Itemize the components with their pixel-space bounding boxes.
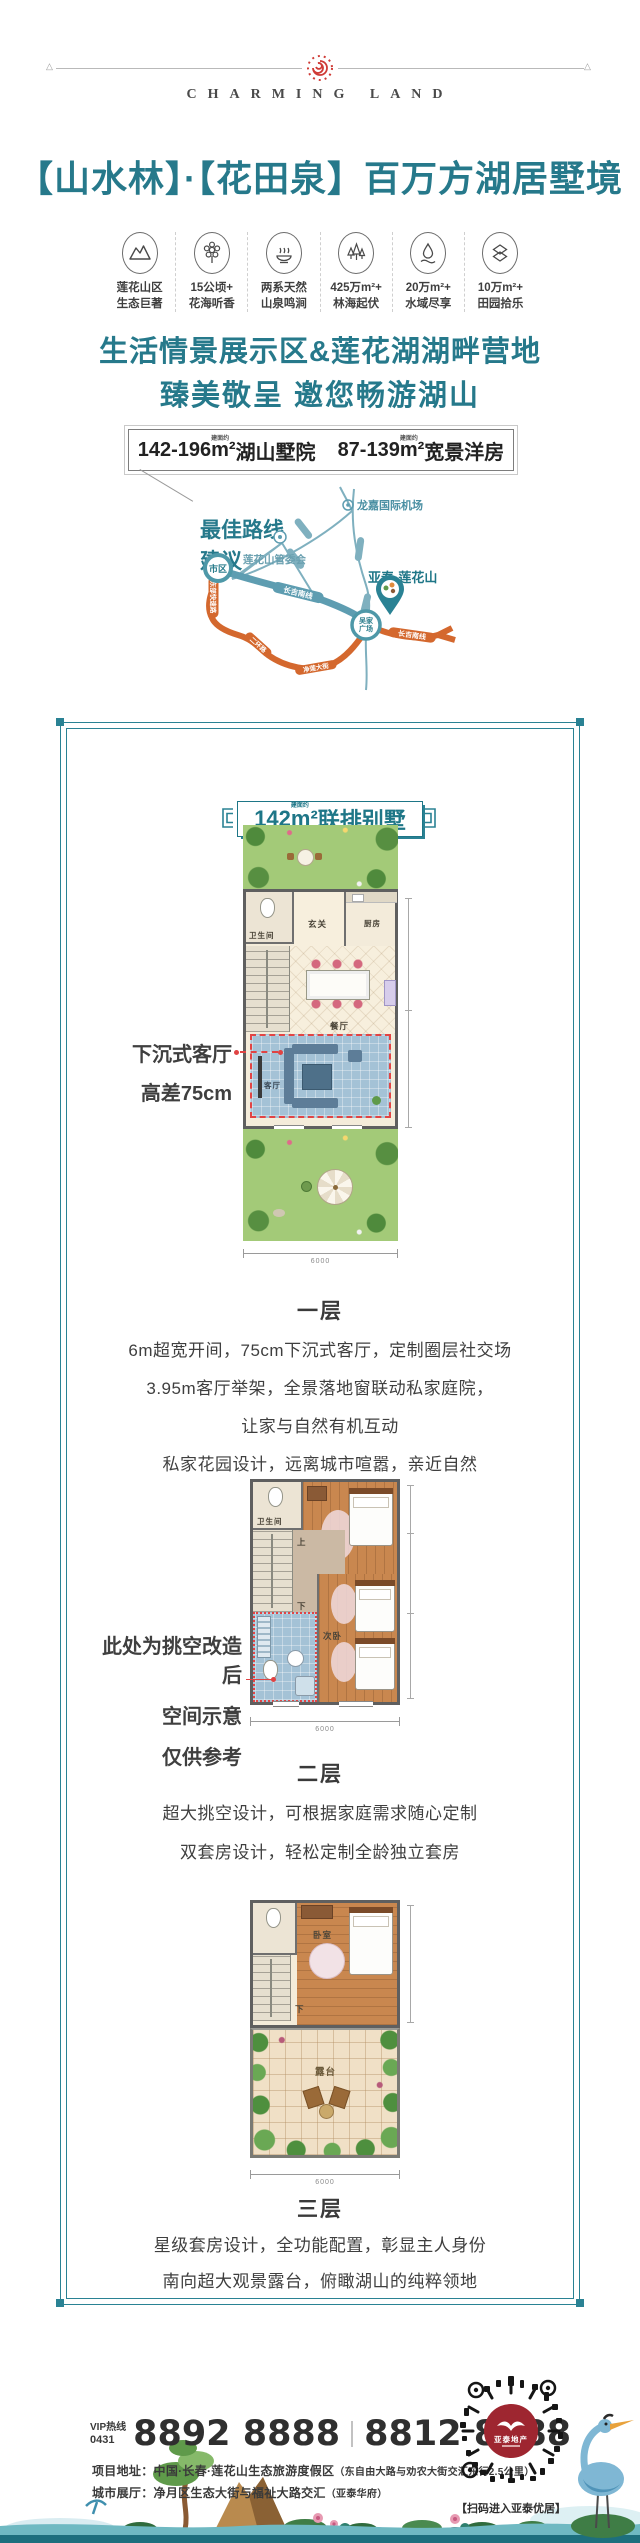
toilet-shape [268, 1487, 283, 1507]
city-hall-address: 城市展厅：净月区生态大街与福祉大路交汇（亚泰华府） [92, 2484, 388, 2501]
floorplan-level2: 卫生间 上 下 次卧 6000 [250, 1479, 400, 1739]
dining-table [306, 970, 370, 1000]
feature-line2: 生态巨著 [104, 296, 175, 312]
header-divider-right [338, 68, 584, 69]
map-square-line1: 吴家 [359, 616, 374, 625]
hot-spring-icon [266, 232, 302, 274]
area-left-name: 湖山墅院 [236, 436, 316, 465]
annotation-arrow-line [246, 1679, 272, 1680]
stair-rail [266, 950, 268, 1028]
feature-line1: 10万m²+ [465, 280, 536, 296]
room-label-bedroom: 卧室 [313, 1929, 332, 1941]
feature-shuiyu: 20万m²+ 水域尽享 [392, 232, 464, 312]
stair-rail [271, 1534, 273, 1608]
feature-line2: 林海起伏 [321, 296, 392, 312]
feature-linhai: 425万m²+ 林海起伏 [320, 232, 392, 312]
square-circle [352, 611, 380, 639]
house-level2: 卫生间 上 下 次卧 [250, 1479, 400, 1705]
sunken-living-room: 客厅 [250, 1034, 391, 1118]
wardrobe-strip [257, 1616, 271, 1658]
dimension-right-level1 [408, 898, 409, 1128]
annotation-dot [278, 1050, 283, 1055]
garden-front [243, 825, 398, 889]
feature-shanquan: 两系天然 山泉鸣涧 [247, 232, 319, 312]
toilet-shape [266, 1908, 281, 1928]
phone-number-1: 8892 8888 [133, 2414, 340, 2454]
floor3-desc-line: 南向超大观景露台，俯瞰湖山的纯粹领地 [0, 2267, 640, 2292]
feature-line2: 山泉鸣涧 [248, 296, 319, 312]
area-banner: 142-196建面约m²湖山墅院 87-139建面约m²宽景洋房 [128, 429, 514, 471]
staircase [246, 946, 290, 1032]
map-committee-label: 莲花山管委会 [243, 553, 306, 566]
mountain-icon [122, 232, 158, 274]
hotline-label: VIP热线 0431 [90, 2422, 126, 2446]
toilet-shape [260, 898, 275, 918]
stairs-down-label: 下 [295, 2003, 305, 2015]
feature-line1: 两系天然 [248, 280, 319, 296]
annotation-dot [234, 1050, 239, 1055]
flower-icon [194, 232, 230, 274]
room-label-bath: 卫生间 [257, 1516, 283, 1527]
annotation-dot [271, 1677, 276, 1682]
qr-code: 亚泰地产 [456, 2374, 566, 2492]
bathroom: 卫生间 [246, 892, 294, 944]
house-level1: 卫生间 玄关 厨房 上 下 餐厅 客厅 [243, 889, 398, 1129]
qr-logo-name: 亚泰地产 [494, 2434, 528, 2444]
staircase [253, 1955, 291, 2021]
map-airport-label: 龙嘉国际机场 [356, 498, 423, 512]
kitchen: 厨房 [344, 892, 395, 950]
armchair [348, 1050, 362, 1062]
bathroom [253, 1903, 297, 1955]
bed [349, 1907, 393, 1975]
feature-line1: 15公顷+ [176, 280, 247, 296]
fridge [384, 980, 396, 1006]
floor-caption-3: 三层 [0, 2193, 640, 2223]
garden-chair [287, 853, 294, 860]
hotline-area-code: 0431 [90, 2434, 126, 2446]
kitchen-sink [352, 894, 364, 902]
garden-chair [315, 853, 322, 860]
bed [355, 1580, 395, 1632]
rug [331, 1584, 357, 1624]
feature-line1: 莲花山区 [104, 280, 175, 296]
feature-line2: 田园拾乐 [465, 296, 536, 312]
plant-pot [372, 1096, 381, 1105]
floor1-desc-line: 6m超宽开间，75cm下沉式客厅，定制圈层社交场 [0, 1336, 640, 1361]
floor-caption-2: 二层 [0, 1758, 640, 1788]
phone-separator [351, 2421, 353, 2447]
annotation-arrow-line [240, 1051, 278, 1053]
feature-tianyuan: 10万m²+ 田园拾乐 [464, 232, 536, 312]
sofa-top [292, 1044, 338, 1054]
road-label-jinglian: 净莲大街 [302, 661, 330, 674]
bed [355, 1638, 395, 1690]
terrace-table [319, 2104, 334, 2119]
water-icon [410, 232, 446, 274]
page-title: 【山水林】·【花田泉】百万方湖居墅境 [0, 150, 640, 202]
feature-line2: 花海听香 [176, 296, 247, 312]
stairs-up-label: 上 [297, 1536, 307, 1548]
converted-bathroom [253, 1612, 317, 1702]
header-divider-left [56, 68, 302, 69]
annotation-void-space: 此处为挑空改造后 空间示意 仅供参考 [88, 1630, 242, 1770]
garden-path-stone [273, 1209, 285, 1217]
window [273, 1701, 299, 1707]
field-icon [482, 232, 518, 274]
annotation-sunken-living: 下沉式客厅 高差75cm [112, 1038, 232, 1106]
room-label-kitchen: 厨房 [364, 918, 381, 929]
feature-lianhuashan: 莲花山区 生态巨著 [104, 232, 175, 312]
intro-line2: 臻美敬呈 邀您畅游湖山 [0, 372, 640, 414]
frame-corner-tr [576, 718, 584, 726]
window [339, 1701, 373, 1707]
sofa-left [284, 1048, 294, 1104]
area-left-unit: 建面约m² [211, 439, 235, 462]
floor1-desc-line: 私家花园设计，远离城市喧嚣，亲近自然 [0, 1450, 640, 1475]
suite-bedroom: 卧室 [297, 1903, 397, 2025]
frame-corner-bl [56, 2299, 64, 2307]
road-to-airport [232, 511, 352, 579]
floor2-desc-line: 超大挑空设计，可根据家庭需求随心定制 [0, 1799, 640, 1824]
heron [571, 2415, 635, 2538]
desk [307, 1486, 327, 1501]
house-level3: 卧室 下 [250, 1900, 400, 2028]
intro-line1: 生活情景展示区&莲花湖湖畔营地 [0, 328, 640, 370]
map-square-line2: 广场 [359, 624, 373, 633]
area-right-range: 87-139 [338, 439, 400, 462]
bed [349, 1488, 393, 1546]
dimension-right-level2 [410, 1485, 411, 1699]
feature-line1: 20万m²+ [393, 280, 464, 296]
room-label-dining: 餐厅 [330, 1020, 349, 1032]
second-bedroom: 次卧 [317, 1574, 397, 1702]
room-label-foyer: 玄关 [308, 918, 327, 930]
dining-room: 餐厅 [290, 946, 395, 1034]
terrace-plants [253, 2030, 397, 2155]
floor1-desc-line: 让家与自然有机互动 [0, 1412, 640, 1437]
features-row: 莲花山区 生态巨著 15公顷+ 花海听香 两系天然 山泉鸣涧 425万m²+ 林… [104, 232, 536, 312]
floor-caption-1: 一层 [0, 1295, 640, 1325]
area-left-range: 142-196 [138, 439, 211, 462]
room-label-terrace: 露台 [315, 2064, 336, 2078]
sink-shape [287, 1650, 304, 1667]
route-map: 长吉南线 东部快速路 二环路 净莲大街 长吉南线 龙嘉国际机场 莲花山管委会 市… [0, 485, 640, 710]
garden-back [243, 1129, 398, 1241]
feature-line1: 425万m²+ [321, 280, 392, 296]
feature-huahai: 15公顷+ 花海听香 [175, 232, 247, 312]
badge-ornament-right [424, 808, 438, 828]
rug [331, 1642, 357, 1682]
stair-rail [270, 1959, 272, 2017]
divider-triangle-left: △ [46, 61, 53, 72]
map-city-label: 市区 [209, 563, 227, 574]
sun-seal-icon [306, 54, 334, 82]
area-right-unit: 建面约m² [400, 439, 424, 462]
foyer: 玄关 [294, 892, 344, 946]
road-label-east-expressway: 东部快速路 [209, 581, 218, 614]
floor3-desc-line: 星级套房设计，全功能配置，彰显主人身份 [0, 2231, 640, 2256]
divider-triangle-right: △ [584, 61, 591, 72]
rug [309, 1943, 345, 1979]
room-label-living: 客厅 [264, 1080, 281, 1091]
floor2-desc-line: 双套房设计，轻松定制全龄独立套房 [0, 1838, 640, 1863]
floorplan-level1: 卫生间 玄关 厨房 上 下 餐厅 客厅 [243, 825, 398, 1265]
wardrobe [301, 1905, 333, 1919]
badge-ornament-left [220, 808, 234, 828]
bathroom: 卫生间 [253, 1482, 303, 1530]
room-label-bath: 卫生间 [249, 930, 275, 941]
floorplan-level3: 卧室 下 露台 6000 [250, 1900, 400, 2190]
road-vertical [353, 489, 369, 690]
brand-name: CHARMING LAND [0, 87, 640, 103]
feature-line2: 水域尽享 [393, 296, 464, 312]
tv-wall [258, 1056, 262, 1098]
staircase [253, 1530, 293, 1612]
garden-chair [301, 1181, 312, 1192]
garden-table [297, 849, 314, 866]
shower-shape [295, 1676, 315, 1696]
frame-corner-br [576, 2299, 584, 2307]
flying-bird [86, 2501, 106, 2514]
qr-caption: 【扫码进入亚泰优居】 [436, 2500, 586, 2516]
parasol [317, 1169, 353, 1205]
dimension-right-level3 [410, 1905, 411, 2023]
terrace: 露台 [250, 2028, 400, 2158]
stairs-down-label: 下 [297, 1600, 307, 1612]
floor1-desc-line: 3.95m客厅举架，全景落地窗联动私家庭院， [0, 1374, 640, 1399]
forest-icon [338, 232, 374, 274]
room-label-bedroom2: 次卧 [323, 1630, 342, 1642]
area-right-name: 宽景洋房 [424, 436, 504, 465]
sofa-bottom [292, 1098, 338, 1108]
coffee-table [302, 1064, 332, 1090]
frame-corner-tl [56, 718, 64, 726]
